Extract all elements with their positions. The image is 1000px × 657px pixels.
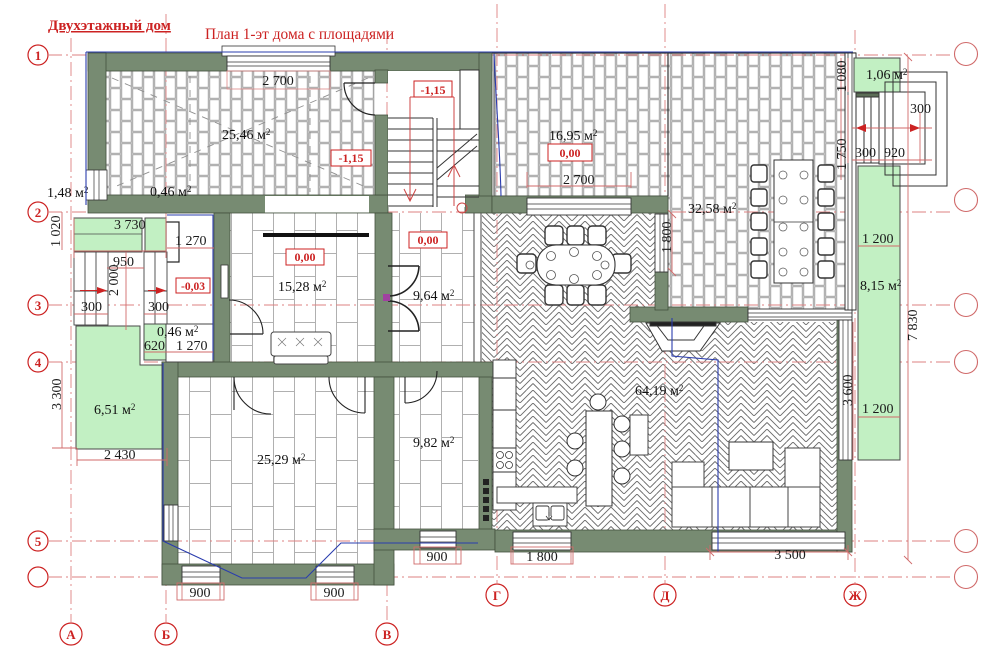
svg-text:3: 3	[35, 298, 42, 313]
svg-text:300: 300	[81, 300, 102, 315]
svg-text:16,95 м2: 16,95 м2	[549, 128, 597, 144]
svg-text:-0,03: -0,03	[181, 281, 205, 293]
svg-text:1 200: 1 200	[862, 402, 894, 417]
svg-text:-1,15: -1,15	[339, 151, 364, 165]
svg-text:64,19 м2: 64,19 м2	[635, 383, 683, 399]
svg-text:2 700: 2 700	[262, 74, 294, 89]
svg-text:Ж: Ж	[849, 588, 862, 603]
svg-text:0,00: 0,00	[418, 233, 439, 247]
svg-text:8,15 м2: 8,15 м2	[860, 278, 901, 294]
svg-text:1 800: 1 800	[660, 222, 675, 254]
svg-text:В: В	[383, 627, 392, 642]
svg-text:32,58 м2: 32,58 м2	[688, 201, 736, 217]
svg-text:5: 5	[35, 534, 42, 549]
svg-text:900: 900	[190, 586, 211, 601]
svg-text:9,64 м2: 9,64 м2	[413, 288, 454, 304]
svg-text:1 270: 1 270	[176, 339, 208, 354]
svg-text:0,00: 0,00	[560, 146, 581, 160]
svg-text:7 830: 7 830	[906, 310, 921, 342]
svg-text:900: 900	[324, 586, 345, 601]
svg-text:3 730: 3 730	[114, 218, 146, 233]
svg-text:-1,15: -1,15	[421, 83, 446, 97]
svg-text:3 600: 3 600	[841, 375, 856, 407]
svg-text:1 750: 1 750	[835, 139, 850, 171]
svg-text:3 500: 3 500	[774, 548, 806, 563]
svg-text:1 080: 1 080	[835, 61, 850, 93]
svg-text:300: 300	[855, 146, 876, 161]
svg-text:0,46 м2: 0,46 м2	[150, 184, 191, 200]
svg-text:0,00: 0,00	[295, 250, 316, 264]
svg-text:2 000: 2 000	[107, 265, 122, 297]
svg-text:15,28 м2: 15,28 м2	[278, 279, 326, 295]
svg-text:620: 620	[144, 339, 165, 354]
svg-text:9,82 м2: 9,82 м2	[413, 435, 454, 451]
svg-text:920: 920	[884, 146, 905, 161]
svg-text:1 800: 1 800	[526, 550, 558, 565]
svg-text:План 1-эт дома с площадями: План 1-эт дома с площадями	[205, 26, 394, 43]
svg-text:1 200: 1 200	[862, 232, 894, 247]
svg-text:Д: Д	[661, 588, 670, 603]
svg-text:2: 2	[35, 205, 42, 220]
svg-text:1: 1	[35, 48, 42, 63]
svg-text:25,29 м2: 25,29 м2	[257, 452, 305, 468]
svg-text:Двухэтажный дом: Двухэтажный дом	[48, 18, 171, 34]
svg-text:3 300: 3 300	[50, 379, 65, 411]
svg-text:4: 4	[35, 355, 42, 370]
svg-text:А: А	[66, 627, 76, 642]
svg-text:1,48 м2: 1,48 м2	[47, 185, 88, 201]
svg-text:0,46 м2: 0,46 м2	[157, 324, 198, 340]
svg-text:2 430: 2 430	[104, 448, 136, 463]
svg-text:25,46 м2: 25,46 м2	[222, 127, 270, 143]
svg-text:300: 300	[148, 300, 169, 315]
svg-text:1 020: 1 020	[49, 216, 64, 248]
svg-text:Б: Б	[162, 627, 171, 642]
svg-text:1,06 м2: 1,06 м2	[866, 67, 907, 83]
svg-text:2 700: 2 700	[563, 173, 595, 188]
svg-text:300: 300	[910, 102, 931, 117]
svg-text:Г: Г	[493, 588, 501, 603]
svg-text:1 270: 1 270	[175, 234, 207, 249]
svg-text:6,51 м2: 6,51 м2	[94, 402, 135, 418]
svg-text:900: 900	[427, 550, 448, 565]
